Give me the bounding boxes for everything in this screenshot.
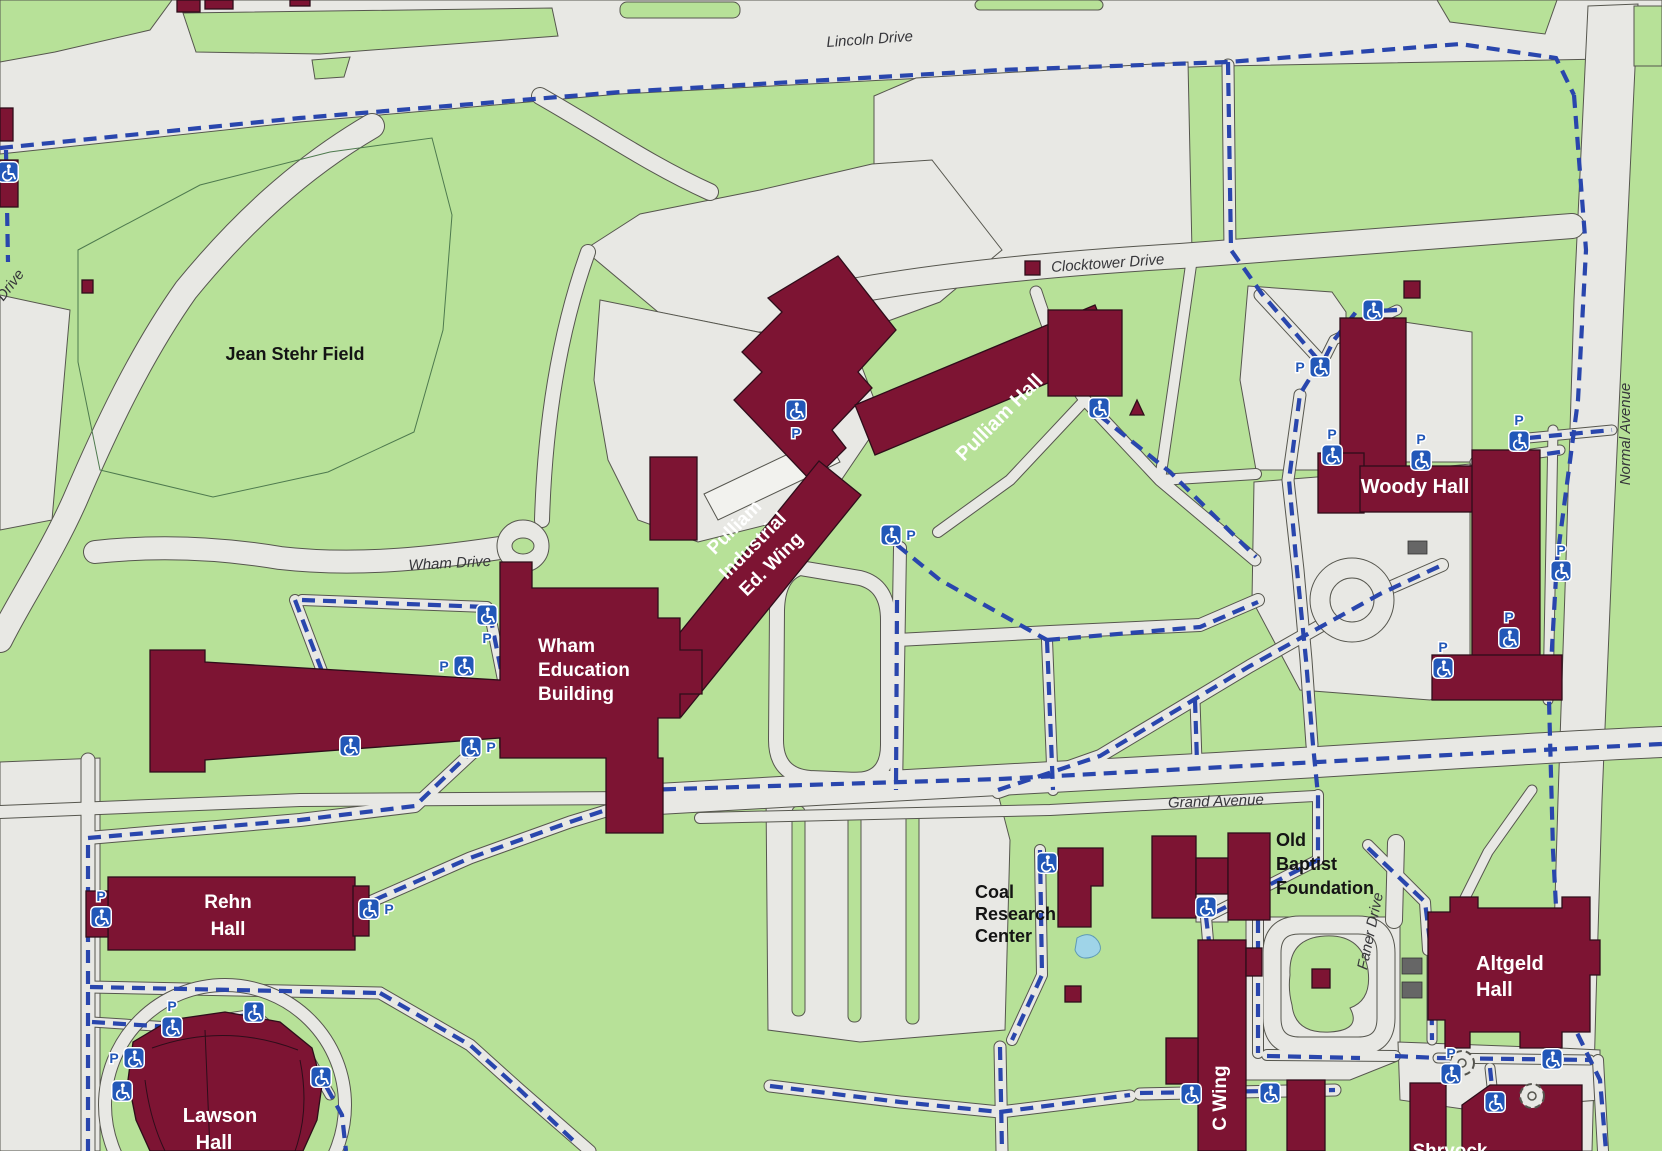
label-shryock: Shryock [1413,1141,1488,1151]
shed-faner-island [1312,969,1330,988]
parking-label: P [1438,639,1447,655]
label-c-wing: C Wing [1210,1065,1231,1130]
wheelchair-icon [1499,628,1520,649]
wheelchair-icon [881,525,902,546]
wheelchair-icon [1542,1049,1563,1070]
parking-label: P [791,425,800,441]
svg-text:Hall: Hall [196,1132,233,1151]
wheelchair-icon [311,1067,332,1088]
svg-text:Hall: Hall [1476,979,1513,1001]
wheelchair-icon [1089,398,1110,419]
parking-label: P [906,527,915,543]
svg-text:Research: Research [975,904,1056,924]
wheelchair-icon [1363,300,1384,321]
svg-text:Baptist: Baptist [1276,854,1337,874]
wheelchair-icon [1310,357,1331,378]
street-label-grand: Grand Avenue [1168,791,1264,811]
svg-text:Education: Education [538,660,630,681]
wheelchair-icon [1322,445,1343,466]
building-pulliam-ed-west [650,457,697,540]
wheelchair-icon [91,907,112,928]
building-old-baptist-mid [1196,858,1228,894]
campus-map[interactable]: PPPPPPPPPPPPPPPPP Jean Stehr Field Linco… [0,0,1662,1151]
parking-label: P [109,1050,118,1066]
wheelchair-icon [1181,1084,1202,1105]
street-label-normal: Normal Avenue [1617,383,1634,486]
wheelchair-icon [461,737,482,758]
wheelchair-icon [359,899,380,920]
wheelchair-icon [1037,853,1058,874]
building-woody-north [1340,318,1406,472]
wheelchair-icon [454,656,475,677]
label-woody: Woody Hall [1361,476,1470,498]
parking-label: P [1295,359,1304,375]
building-woody-east [1472,450,1540,688]
svg-text:Center: Center [975,926,1032,946]
parking-label: P [1504,609,1513,625]
woody-court [1404,322,1472,462]
parking-label: P [167,998,176,1014]
monument-circle [1520,1084,1544,1108]
svg-text:Altgeld: Altgeld [1476,953,1544,975]
parking-label: P [439,658,448,674]
wheelchair-icon [1433,658,1454,679]
wheelchair-icon [786,400,807,421]
wheelchair-icon [1485,1092,1506,1113]
wheelchair-icon [340,736,361,757]
woody-entrance [1408,541,1427,554]
svg-text:Rehn: Rehn [204,892,252,913]
wheelchair-icon [0,162,18,183]
svg-text:Building: Building [538,684,614,705]
parking-label: P [384,901,393,917]
parking-label: P [1446,1045,1455,1061]
wheelchair-icon [124,1048,145,1069]
building-east-of-cwing [1287,1080,1325,1151]
parking-label: P [482,630,491,646]
wheelchair-icon [244,1002,265,1023]
svg-text:Coal: Coal [975,882,1014,902]
wheelchair-icon [1509,431,1530,452]
parking-label: P [1416,431,1425,447]
svg-text:Hall: Hall [211,919,246,940]
svg-text:Wham: Wham [538,636,595,657]
wheelchair-icon [112,1081,133,1102]
parking-label: P [1327,426,1336,442]
wheelchair-icon [1260,1083,1281,1104]
svg-text:Lawson: Lawson [183,1105,257,1127]
building-pulliam-end [1048,310,1122,396]
svg-text:Foundation: Foundation [1276,878,1374,898]
parking-label: P [1556,542,1565,558]
parking-label: P [1514,412,1523,428]
wheelchair-icon [1411,450,1432,471]
wheelchair-icon [477,605,498,626]
building-old-baptist-e [1228,833,1270,920]
wheelchair-icon [1551,561,1572,582]
parking-label: P [486,739,495,755]
shed-jean-stehr [82,280,93,293]
wheelchair-icon [1441,1064,1462,1085]
altgeld-entrance [1402,958,1422,974]
svg-text:Old: Old [1276,830,1306,850]
building-old-baptist-w [1152,836,1196,918]
parking-label: P [96,888,105,904]
wheelchair-icon [162,1017,183,1038]
field-label: Jean Stehr Field [225,344,364,364]
building-lawson [128,1012,322,1151]
wheelchair-icon [1196,897,1217,918]
